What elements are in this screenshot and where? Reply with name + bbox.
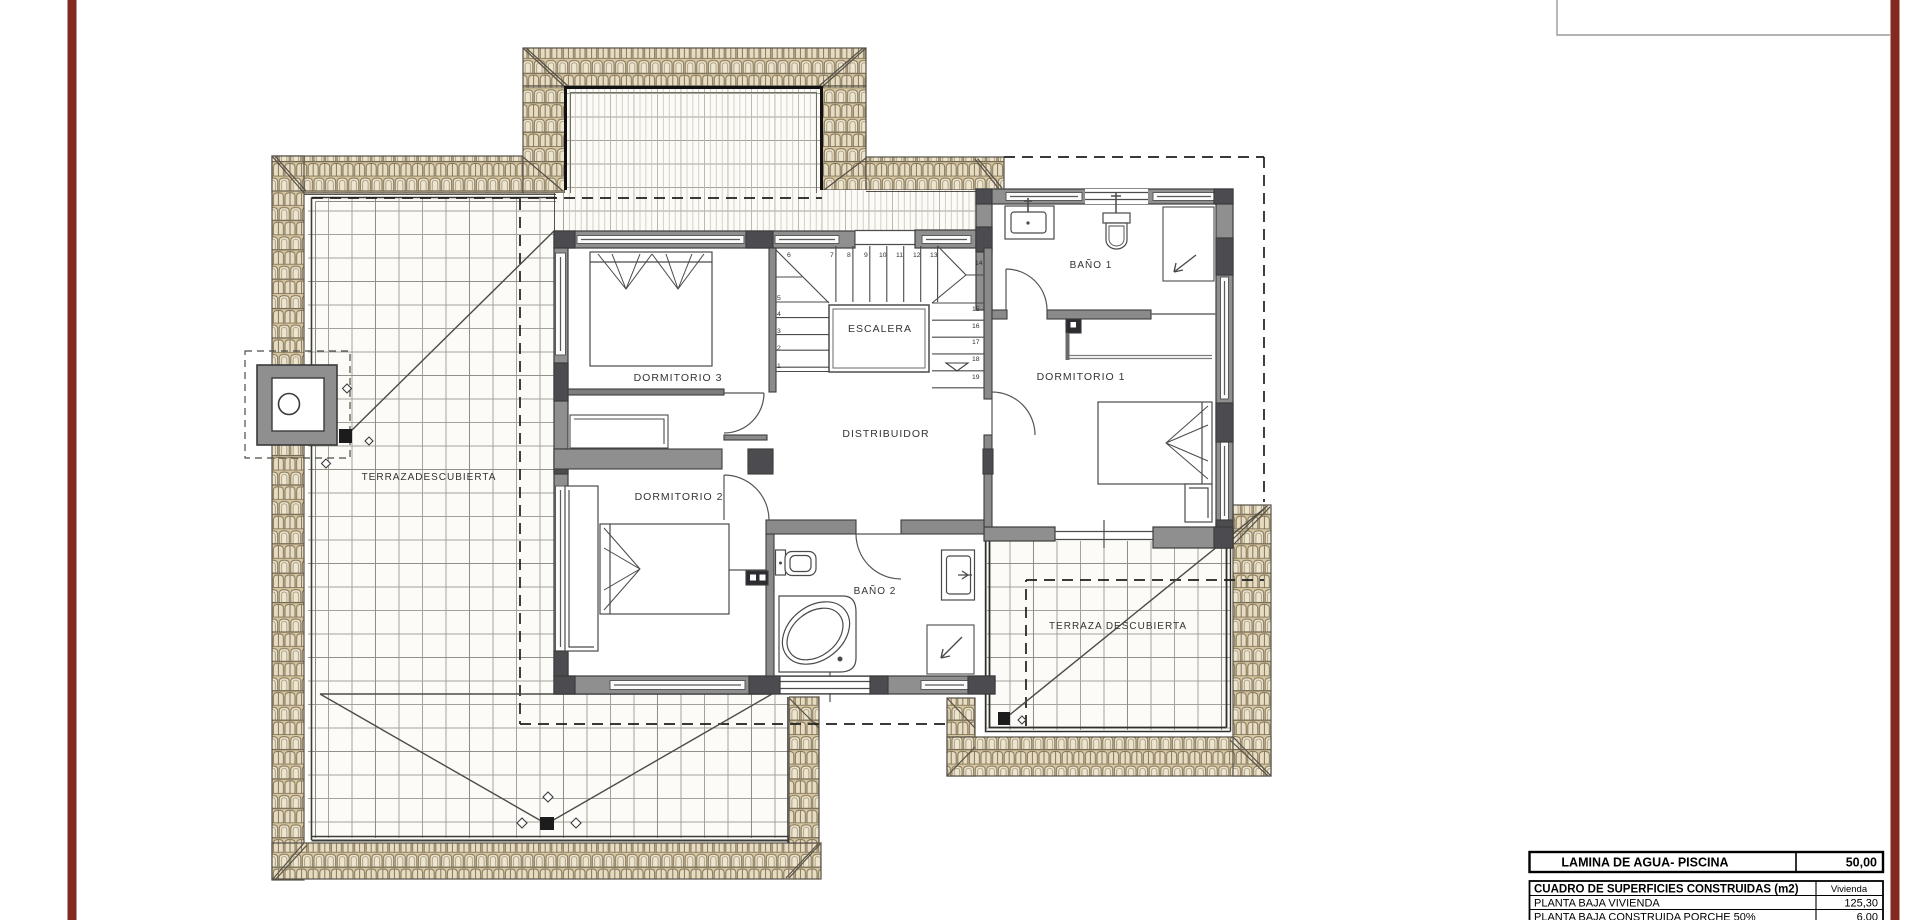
- svg-text:6: 6: [787, 252, 791, 259]
- svg-text:BAÑO 2: BAÑO 2: [854, 584, 897, 597]
- svg-text:19: 19: [972, 374, 980, 381]
- svg-text:3: 3: [777, 328, 781, 335]
- svg-text:BAÑO 1: BAÑO 1: [1070, 258, 1113, 271]
- svg-text:12: 12: [913, 252, 921, 259]
- svg-text:8: 8: [847, 252, 851, 259]
- svg-text:10: 10: [879, 252, 887, 259]
- svg-text:9: 9: [864, 252, 868, 259]
- svg-text:TERRAZA DESCUBIERTA: TERRAZA DESCUBIERTA: [1049, 621, 1187, 632]
- svg-text:TERRAZADESCUBIERTA: TERRAZADESCUBIERTA: [362, 472, 497, 483]
- svg-text:16: 16: [972, 323, 980, 330]
- svg-text:Vivienda: Vivienda: [1831, 884, 1868, 895]
- svg-text:15: 15: [972, 306, 980, 313]
- svg-text:4: 4: [777, 311, 781, 318]
- svg-text:14: 14: [975, 260, 983, 267]
- svg-text:PLANTA BAJA CONSTRUIDA PORCHE: PLANTA BAJA CONSTRUIDA PORCHE 50%: [1534, 912, 1756, 920]
- svg-text:1: 1: [777, 363, 781, 370]
- svg-text:DORMITORIO 1: DORMITORIO 1: [1037, 371, 1126, 383]
- svg-text:PLANTA BAJA VIVIENDA: PLANTA BAJA VIVIENDA: [1534, 898, 1660, 910]
- svg-text:11: 11: [896, 252, 903, 259]
- svg-text:CUADRO DE SUPERFICIES CONSTRUI: CUADRO DE SUPERFICIES CONSTRUIDAS (m2): [1534, 884, 1799, 896]
- svg-text:DORMITORIO 2: DORMITORIO 2: [635, 491, 724, 503]
- svg-text:13: 13: [930, 252, 938, 259]
- svg-text:DISTRIBUIDOR: DISTRIBUIDOR: [842, 428, 929, 440]
- svg-text:ESCALERA: ESCALERA: [848, 323, 912, 335]
- svg-text:DORMITORIO 3: DORMITORIO 3: [634, 372, 723, 384]
- svg-text:6,00: 6,00: [1857, 912, 1878, 920]
- svg-text:17: 17: [972, 339, 980, 346]
- svg-text:2: 2: [777, 345, 781, 352]
- svg-text:5: 5: [777, 295, 781, 302]
- svg-text:50,00: 50,00: [1846, 856, 1877, 870]
- svg-text:7: 7: [830, 252, 834, 259]
- svg-text:18: 18: [972, 356, 980, 363]
- svg-text:125,30: 125,30: [1844, 898, 1878, 910]
- svg-text:LAMINA DE AGUA- PISCINA: LAMINA DE AGUA- PISCINA: [1561, 856, 1728, 870]
